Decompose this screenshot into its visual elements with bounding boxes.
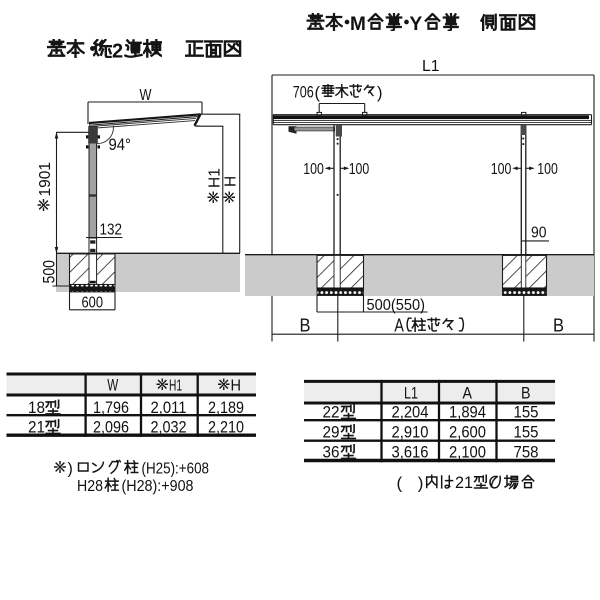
svg-text:90: 90 — [531, 225, 547, 242]
svg-text:H: H — [231, 378, 242, 395]
svg-text:): ) — [418, 474, 424, 493]
svg-text:706: 706 — [293, 84, 314, 102]
svg-text:): ) — [377, 84, 383, 102]
svg-text:H1: H1 — [169, 378, 182, 395]
svg-text:3,616: 3,616 — [392, 444, 429, 462]
svg-text:758: 758 — [514, 444, 539, 462]
svg-text:94°: 94° — [109, 136, 132, 154]
svg-text:29: 29 — [323, 424, 340, 442]
svg-text:B: B — [300, 315, 311, 335]
svg-text:1,796: 1,796 — [93, 399, 129, 417]
svg-text:W: W — [140, 87, 152, 104]
svg-text:500: 500 — [41, 260, 59, 284]
svg-text:18: 18 — [28, 399, 45, 417]
svg-text:L1: L1 — [404, 385, 418, 403]
svg-text:132: 132 — [100, 222, 123, 239]
svg-text:H: H — [223, 176, 240, 187]
svg-text:2,011: 2,011 — [151, 399, 187, 417]
svg-text:(H28):+908: (H28):+908 — [122, 478, 194, 495]
svg-text:A: A — [463, 385, 473, 403]
svg-text:21: 21 — [28, 419, 45, 437]
svg-text:W: W — [107, 377, 118, 395]
svg-text:2,096: 2,096 — [93, 419, 129, 437]
svg-text:2,600: 2,600 — [449, 424, 486, 442]
svg-text:2,189: 2,189 — [208, 399, 244, 417]
svg-text:36: 36 — [323, 444, 340, 462]
svg-text:2,204: 2,204 — [392, 404, 429, 422]
svg-text:2,100: 2,100 — [449, 444, 486, 462]
svg-text:(H25):+608: (H25):+608 — [142, 461, 210, 478]
svg-text:1,894: 1,894 — [449, 404, 486, 422]
svg-text:21: 21 — [455, 474, 473, 492]
svg-text:H28: H28 — [77, 478, 103, 495]
svg-text:2: 2 — [112, 41, 123, 63]
svg-text:100: 100 — [491, 161, 512, 178]
svg-text:2,910: 2,910 — [392, 424, 429, 442]
svg-text:M: M — [350, 14, 366, 35]
svg-text:155: 155 — [514, 404, 539, 422]
svg-text:600: 600 — [82, 295, 104, 312]
svg-text:(: ( — [315, 84, 321, 102]
svg-text:B: B — [553, 315, 564, 335]
svg-text:2,210: 2,210 — [208, 419, 244, 437]
svg-text:100: 100 — [537, 161, 558, 178]
svg-text:(: ( — [397, 474, 403, 493]
svg-text:100: 100 — [349, 161, 370, 178]
svg-text:22: 22 — [323, 404, 340, 422]
svg-text:155: 155 — [514, 424, 539, 442]
svg-text:H1: H1 — [207, 168, 224, 188]
svg-text:): ) — [68, 461, 73, 478]
svg-text:B: B — [521, 385, 531, 403]
svg-text:2,032: 2,032 — [151, 419, 187, 437]
svg-text:Y: Y — [410, 14, 423, 35]
svg-text:1901: 1901 — [37, 162, 54, 196]
svg-text:L1: L1 — [422, 58, 440, 75]
svg-text:100: 100 — [303, 161, 324, 178]
svg-text:500(550): 500(550) — [367, 297, 426, 314]
svg-text:A: A — [394, 315, 404, 335]
